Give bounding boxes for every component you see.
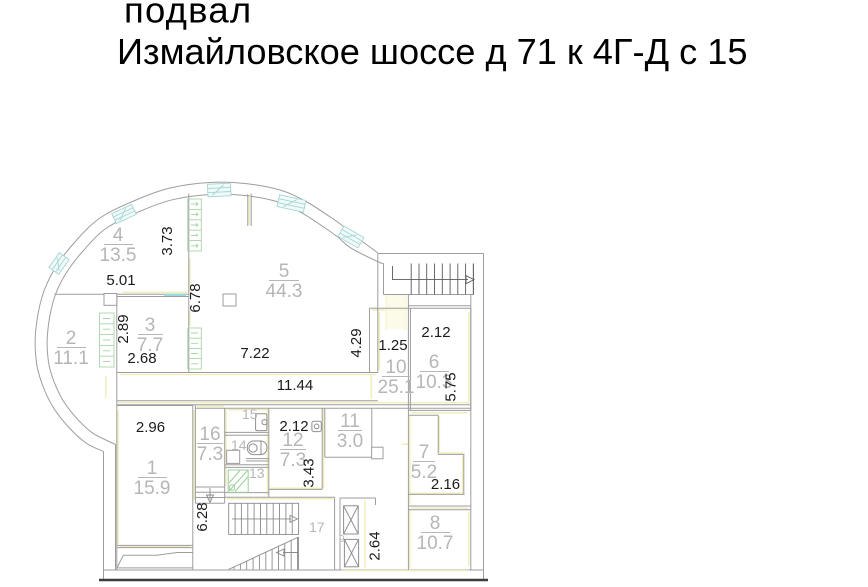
svg-text:2.12: 2.12 — [279, 418, 308, 435]
svg-text:25.1: 25.1 — [378, 377, 415, 398]
svg-text:2.89: 2.89 — [115, 314, 132, 343]
svg-text:2.96: 2.96 — [136, 419, 165, 436]
svg-text:44.3: 44.3 — [266, 281, 303, 302]
svg-text:7.3: 7.3 — [197, 444, 223, 465]
svg-text:2.64: 2.64 — [367, 531, 384, 560]
svg-text:Измайловское шоссе д 71 к 4Г-Д: Измайловское шоссе д 71 к 4Г-Д с 15 — [117, 31, 748, 72]
svg-text:4: 4 — [113, 225, 124, 246]
svg-text:3.43: 3.43 — [301, 458, 318, 487]
svg-text:14: 14 — [231, 437, 247, 453]
svg-text:16: 16 — [199, 424, 220, 445]
svg-text:11.1: 11.1 — [53, 348, 89, 369]
svg-text:3.73: 3.73 — [159, 226, 176, 255]
svg-text:4.29: 4.29 — [348, 328, 365, 357]
svg-text:1.25: 1.25 — [378, 337, 407, 354]
svg-text:15.9: 15.9 — [134, 478, 171, 499]
svg-text:6.78: 6.78 — [187, 283, 204, 312]
svg-text:2.12: 2.12 — [421, 324, 450, 341]
svg-text:9: 9 — [339, 534, 345, 545]
svg-text:6: 6 — [429, 352, 440, 373]
svg-text:8: 8 — [430, 513, 441, 534]
svg-text:11: 11 — [340, 411, 360, 432]
svg-text:13: 13 — [249, 465, 265, 481]
svg-text:15: 15 — [242, 406, 258, 422]
svg-text:2: 2 — [66, 328, 77, 349]
svg-text:13.5: 13.5 — [100, 245, 137, 266]
svg-text:6.28: 6.28 — [194, 502, 211, 531]
svg-text:5.75: 5.75 — [443, 372, 460, 401]
svg-text:10.7: 10.7 — [417, 533, 454, 554]
svg-text:подвал: подвал — [124, 0, 252, 31]
svg-text:7.22: 7.22 — [240, 345, 269, 362]
svg-text:11.44: 11.44 — [277, 377, 313, 394]
svg-text:2.16: 2.16 — [431, 476, 460, 493]
svg-text:7: 7 — [419, 442, 430, 463]
svg-text:3: 3 — [145, 315, 156, 336]
svg-text:1: 1 — [147, 458, 158, 479]
svg-text:5.01: 5.01 — [106, 272, 135, 289]
svg-text:17: 17 — [309, 519, 325, 535]
svg-text:3.0: 3.0 — [337, 431, 363, 452]
svg-text:2.68: 2.68 — [127, 350, 156, 367]
svg-text:10: 10 — [385, 357, 406, 378]
svg-text:5: 5 — [279, 261, 290, 282]
